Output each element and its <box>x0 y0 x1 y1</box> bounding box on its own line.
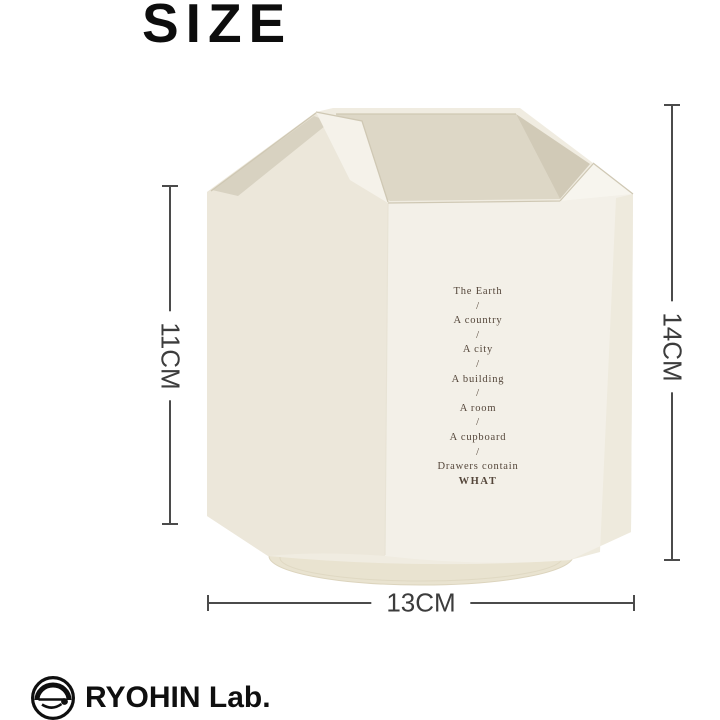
brand-logo: RYOHIN Lab. <box>30 675 271 720</box>
poem-line: A country <box>398 314 558 329</box>
poem-slash: / <box>398 358 558 373</box>
poem-slash: / <box>398 329 558 344</box>
product-illustration <box>0 0 720 720</box>
product-size-diagram: SIZE The Earth / A country / A city / <box>0 0 720 720</box>
dim-label-11cm: 11CM <box>156 311 185 400</box>
poem-line: A building <box>398 373 558 388</box>
dim-cap <box>162 523 178 525</box>
poem-slash: / <box>398 416 558 431</box>
dim-cap <box>664 559 680 561</box>
poem-line: A city <box>398 343 558 358</box>
poem-slash: / <box>398 446 558 461</box>
dim-cap <box>664 104 680 106</box>
poem-slash: / <box>398 387 558 402</box>
dim-label-14cm: 14CM <box>658 301 687 392</box>
poem-line: Drawers contain <box>398 460 558 475</box>
dim-cap <box>162 185 178 187</box>
dim-cap <box>633 595 635 611</box>
poem-line-what: WHAT <box>398 475 558 490</box>
poem-slash: / <box>398 300 558 315</box>
brand-name: RYOHIN Lab. <box>85 683 271 713</box>
poem-line: A room <box>398 402 558 417</box>
poem-line: A cupboard <box>398 431 558 446</box>
ryohin-circle-logo-icon <box>30 675 76 720</box>
dim-label-13cm: 13CM <box>371 589 470 618</box>
product-poem: The Earth / A country / A city / A build… <box>398 285 558 489</box>
dim-cap <box>207 595 209 611</box>
poem-line: The Earth <box>398 285 558 300</box>
